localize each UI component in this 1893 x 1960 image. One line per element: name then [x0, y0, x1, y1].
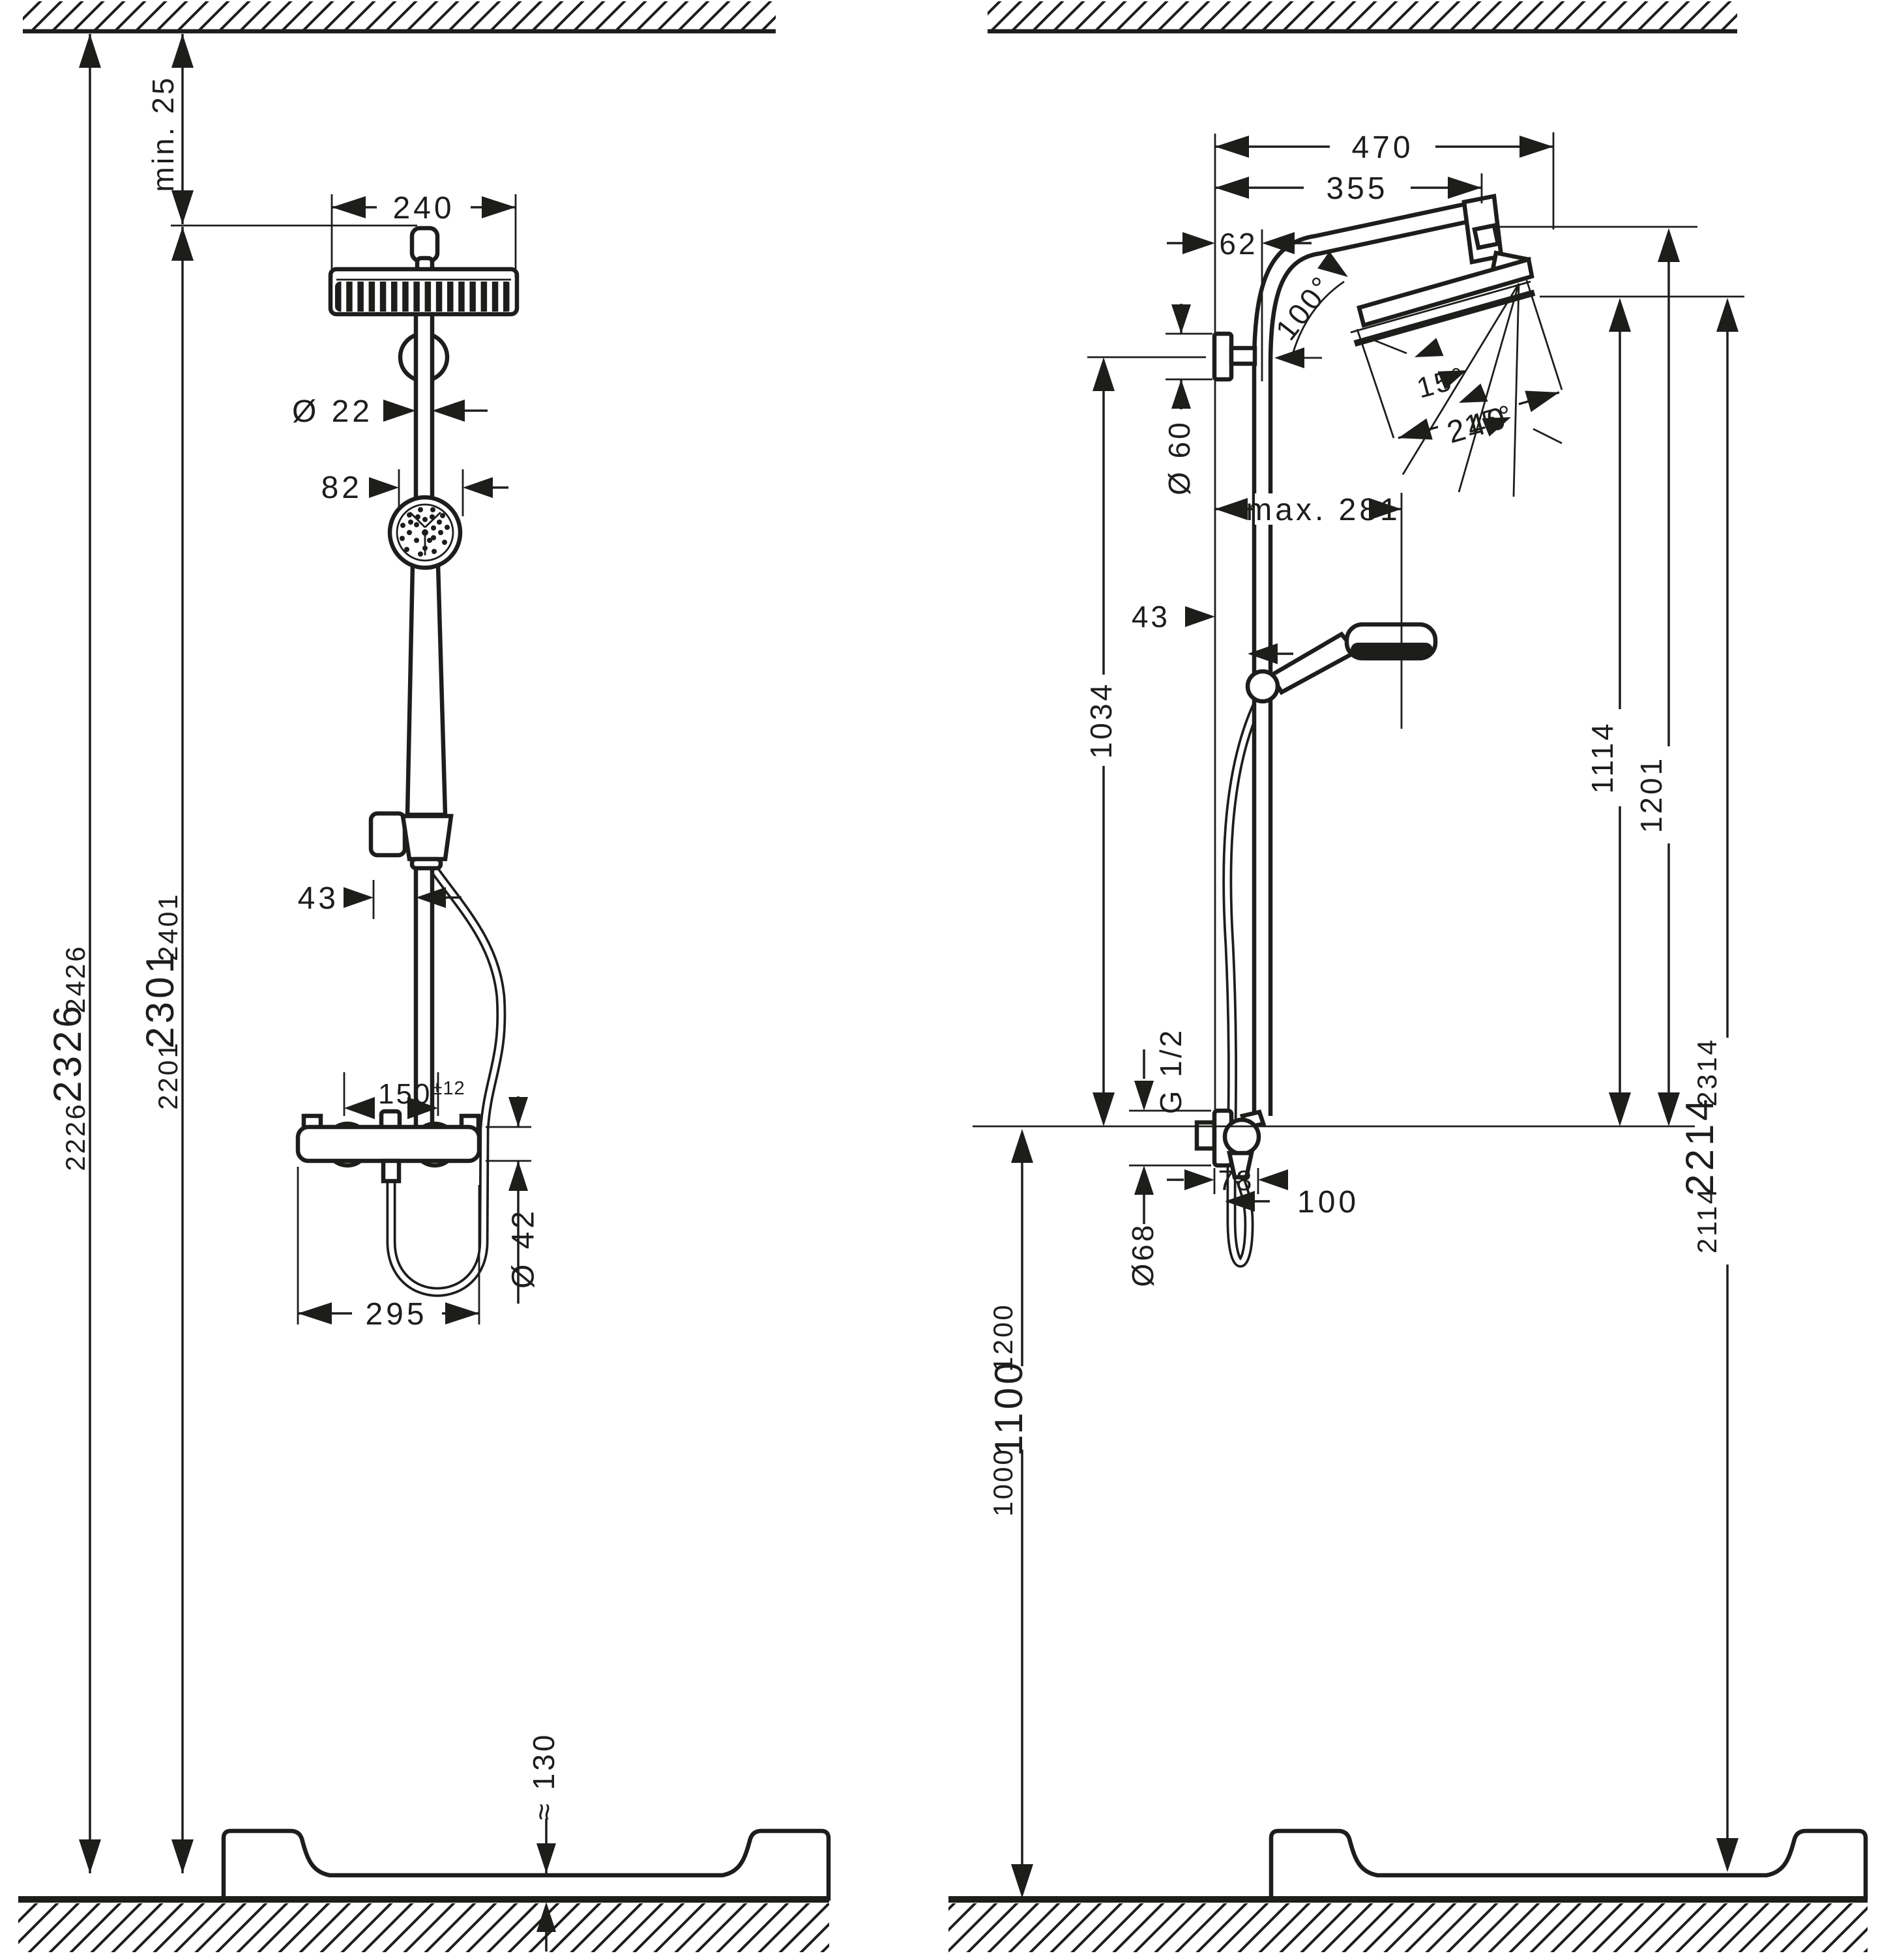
dim-label: 240 [392, 191, 454, 226]
dim-label: 2201 [153, 1041, 183, 1109]
overhead-shower-front [330, 228, 517, 314]
hand-shower-handle [407, 564, 445, 815]
side-dimensions: 470 355 62 100° [973, 130, 1744, 1898]
ceiling-right [988, 1, 1737, 31]
thermostat-front [298, 1111, 479, 1181]
dim-label: 82 [321, 471, 362, 505]
dim-label: 2114 [1692, 1187, 1722, 1253]
floor-right [948, 1899, 1868, 1952]
floor-left [18, 1899, 829, 1952]
dim-connection-spacing: 150±12 [344, 1072, 465, 1119]
dim-pipe-diameter: Ø 22 [292, 394, 488, 429]
thermostat-body [298, 1127, 479, 1161]
dim-reach-arm: 355 [1215, 171, 1482, 206]
dim-install-height: 1200 1100 1000 [987, 1129, 1033, 1898]
head-spray-slats [335, 282, 512, 312]
dim-label: 100° [1269, 269, 1340, 347]
dim-label: 1201 [1634, 756, 1668, 833]
head-dome-cap [412, 228, 437, 261]
slide-bar-holder-front [371, 813, 451, 868]
dim-label: Ø 42 [506, 1208, 541, 1289]
dim-label: min. 25 [146, 76, 180, 192]
dim-label: 2214 [1678, 1096, 1722, 1195]
front-shower-hose [391, 859, 501, 1292]
shower-tray-right [1271, 1831, 1866, 1901]
dim-flange-diameter: Ø 60 [1162, 304, 1212, 495]
drawing-sheet: 2426 2326 2226 min. 25 2401 2301 2201 [0, 0, 1893, 1960]
dim-label: G 1/2 [1154, 1028, 1188, 1115]
dimension-drawing: 2426 2326 2226 min. 25 2401 2301 2201 [0, 0, 1893, 1960]
dim-label: 43 [1132, 600, 1170, 634]
dim-label: Ø 60 [1162, 420, 1196, 495]
dim-label: 62 [1219, 227, 1257, 261]
overhead-shower-side [1351, 196, 1534, 344]
dim-head-height: 2314 2214 2114 [1678, 298, 1739, 1872]
front-dimensions: 2426 2326 2226 min. 25 2401 2301 2201 [46, 34, 561, 1952]
dim-thread: G 1/2 [1134, 1028, 1188, 1115]
valve-handle-side [1225, 1120, 1259, 1154]
dim-label: 2301 [138, 948, 182, 1048]
hose-outlet [383, 1161, 399, 1181]
dim-label: 1034 [1084, 682, 1118, 759]
dim-face-height: 1114 [1585, 298, 1631, 1126]
dim-label: 2226 [60, 1102, 91, 1171]
ceiling-left [23, 1, 776, 31]
dim-label: 295 [365, 1297, 427, 1332]
front-view [298, 228, 517, 1292]
wall-bracket-side [1214, 334, 1255, 379]
dim-arm-angle: 100° [1269, 252, 1354, 368]
dim-max-reach: max. 281 [1215, 493, 1401, 729]
dim-label: 355 [1326, 171, 1388, 206]
hand-shower-front [390, 497, 460, 815]
hand-shower-handle-side [1271, 634, 1356, 692]
dim-label: 1100 [987, 1359, 1031, 1456]
dim-label: 2326 [46, 1002, 89, 1102]
dim-label: 1000 [988, 1448, 1018, 1516]
holder-knob [1248, 671, 1278, 701]
hand-shower-face-side [1351, 643, 1433, 657]
dim-label: 78 [1218, 1165, 1254, 1197]
dim-label: Ø68 [1126, 1223, 1160, 1287]
dim-label: ≈ 130 [527, 1733, 561, 1821]
dim-union-diameter: Ø 42 [486, 1096, 541, 1304]
dim-label: 150±12 [378, 1078, 465, 1110]
dim-label: Ø 22 [292, 394, 373, 429]
dim-label: 100 [1297, 1185, 1359, 1220]
dim-valve-depth: 78 [1167, 1165, 1288, 1197]
dim-label: 240 [1443, 400, 1512, 450]
dim-total-height: 2426 2326 2226 [46, 34, 101, 1873]
shower-tray-left [224, 1831, 829, 1901]
dim-holder-offset-front: 43 [298, 880, 462, 919]
dim-label: 1114 [1585, 721, 1619, 794]
dim-wall-offset: 62 [1167, 227, 1312, 261]
dim-label: 470 [1351, 130, 1413, 165]
dim-top-height: 1201 [1634, 228, 1680, 1126]
dim-label: 15° [1413, 361, 1469, 405]
dim-label: 43 [298, 881, 339, 916]
